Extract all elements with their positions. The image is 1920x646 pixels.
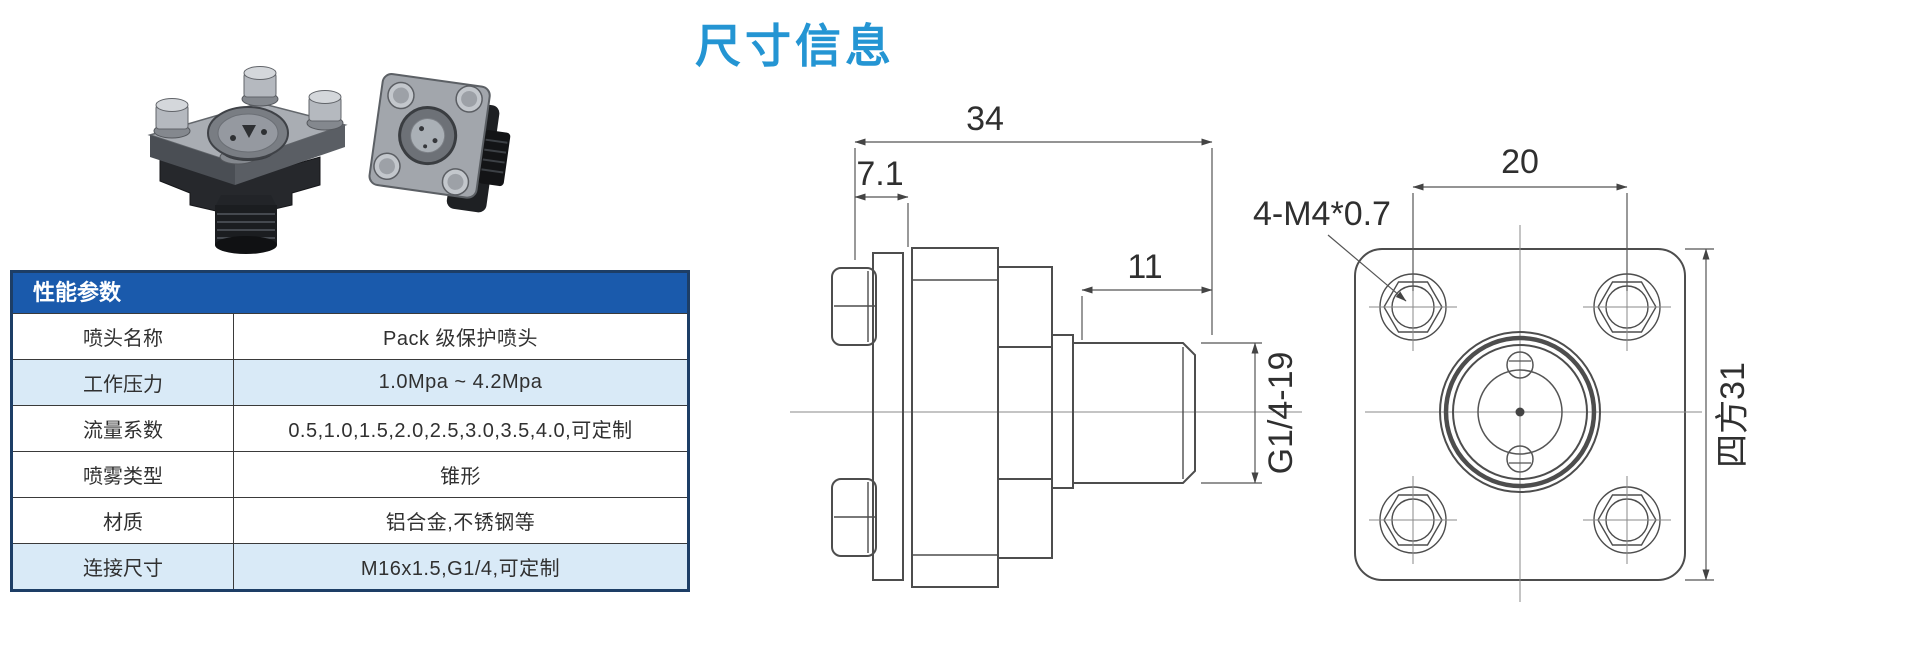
table-row: 喷头名称 Pack 级保护喷头 (13, 313, 687, 359)
spec-value: Pack 级保护喷头 (234, 314, 687, 359)
dim-text-overall-width: 34 (966, 100, 1004, 138)
dim-text-square-size: 四方31 (1714, 362, 1752, 468)
dim-text-bolt-spacing: 20 (1501, 143, 1539, 181)
dim-thread-spec: G1/4-19 (1201, 343, 1300, 483)
bolt-profile-bottom (832, 479, 876, 556)
bolt (242, 67, 278, 107)
dim-text-thread-length: 11 (1127, 248, 1162, 286)
dim-square-size: 四方31 (1685, 249, 1752, 580)
table-row: 工作压力 1.0Mpa ~ 4.2Mpa (13, 359, 687, 405)
thread-stub (1073, 343, 1195, 483)
dim-text-thread-spec: G1/4-19 (1262, 352, 1300, 475)
product-photos (120, 45, 540, 270)
body-step-bottom (998, 479, 1052, 558)
front-view: 20 4-M4*0.7 四方31 (1253, 143, 1752, 602)
bolt-front (1369, 476, 1457, 564)
bolt-profile-top (832, 268, 876, 345)
spec-label: 流量系数 (13, 406, 234, 451)
spec-value: 铝合金,不锈钢等 (234, 498, 687, 543)
technical-drawing: 34 7.1 11 G1/4-19 (640, 85, 1920, 646)
spec-label: 喷雾类型 (13, 452, 234, 497)
dim-text-bolt-thread: 4-M4*0.7 (1253, 195, 1391, 233)
spec-label: 喷头名称 (13, 314, 234, 359)
nozzle-thread (215, 195, 277, 254)
table-row: 喷雾类型 锥形 (13, 451, 687, 497)
product-photo-tilted (362, 53, 522, 253)
datasheet-page: 尺寸信息 (0, 0, 1920, 646)
spec-label: 工作压力 (13, 360, 234, 405)
body-step-top (998, 267, 1052, 347)
bolt (154, 99, 190, 139)
table-row: 流量系数 0.5,1.0,1.5,2.0,2.5,3.0,3.5,4.0,可定制 (13, 405, 687, 451)
dim-thread-length: 11 (1082, 248, 1212, 340)
dim-flange-offset: 7.1 (855, 155, 908, 247)
product-photo-front (120, 45, 370, 265)
spec-value: 1.0Mpa ~ 4.2Mpa (234, 360, 687, 405)
bolt-front (1583, 476, 1671, 564)
main-plate (912, 248, 998, 587)
flange-plate (873, 253, 903, 580)
table-row: 连接尺寸 M16x1.5,G1/4,可定制 (13, 543, 687, 589)
spec-table: 性能参数 喷头名称 Pack 级保护喷头 工作压力 1.0Mpa ~ 4.2Mp… (10, 270, 690, 592)
side-view: 34 7.1 11 G1/4-19 (790, 100, 1302, 587)
spec-table-header: 性能参数 (13, 273, 687, 313)
dim-text-flange-offset: 7.1 (856, 155, 903, 193)
spec-label: 连接尺寸 (13, 544, 234, 589)
spec-label: 材质 (13, 498, 234, 543)
spec-value: 0.5,1.0,1.5,2.0,2.5,3.0,3.5,4.0,可定制 (234, 406, 687, 451)
bolt (307, 91, 343, 131)
spec-value: 锥形 (234, 452, 687, 497)
spec-value: M16x1.5,G1/4,可定制 (234, 544, 687, 589)
table-row: 材质 铝合金,不锈钢等 (13, 497, 687, 543)
